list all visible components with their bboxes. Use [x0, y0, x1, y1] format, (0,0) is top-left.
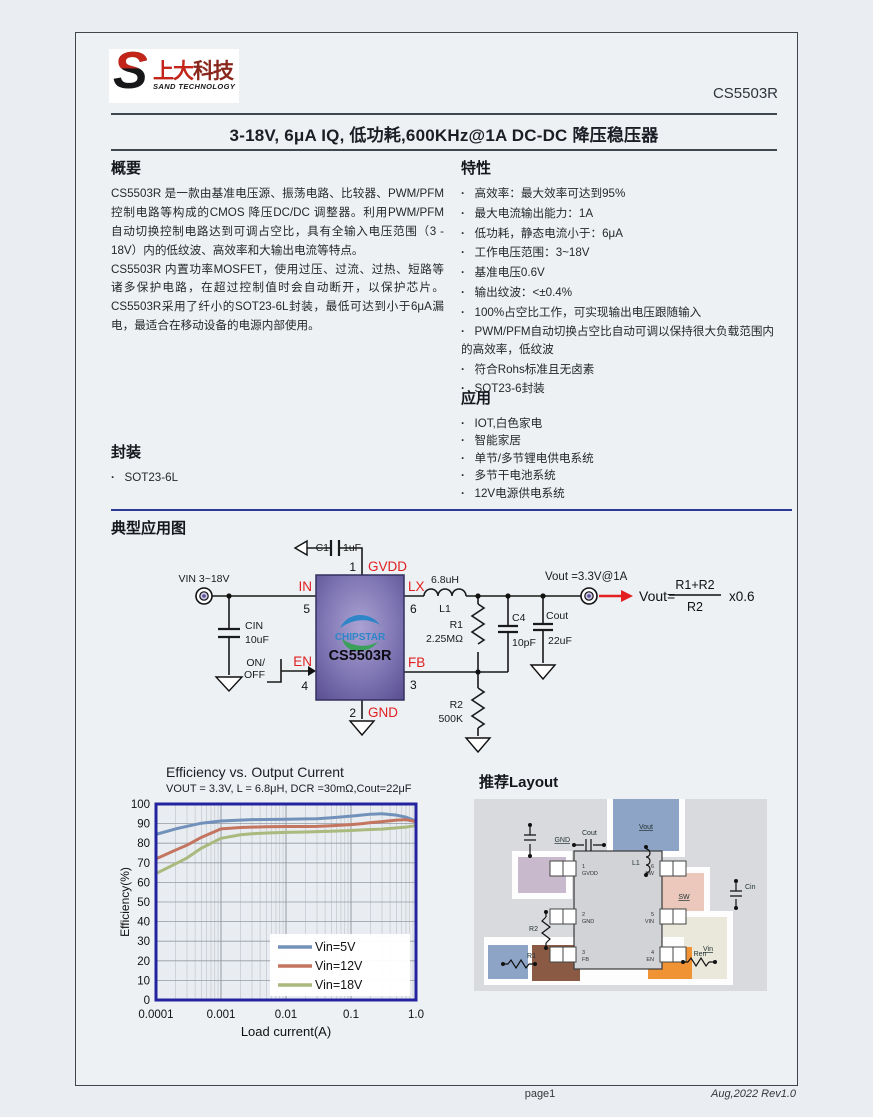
section-applications: 应用 IOT,白色家电 智能家居 单节/多节锂电供电系统 多节干电池系统 12V…: [461, 387, 783, 502]
svg-text:0.001: 0.001: [207, 1009, 236, 1021]
header-rule-bottom: [111, 149, 777, 151]
vout-formula: Vout= R1+R2 R2 x0.6: [599, 578, 755, 614]
package-list: SOT23-6L: [111, 469, 411, 486]
svg-text:C4: C4: [512, 612, 526, 624]
svg-text:GND: GND: [368, 705, 398, 720]
svg-text:6.8uH: 6.8uH: [431, 574, 459, 586]
list-item: 基准电压0.6V: [461, 264, 783, 281]
svg-text:R2: R2: [450, 699, 464, 711]
ground-icon: [216, 677, 242, 691]
svg-text:100: 100: [131, 799, 150, 811]
svg-text:L1: L1: [632, 860, 640, 867]
svg-text:R2: R2: [529, 926, 538, 933]
svg-text:500K: 500K: [438, 713, 463, 725]
features-heading: 特性: [461, 157, 783, 178]
list-item: IOT,白色家电: [461, 415, 783, 432]
svg-text:Vin=5V: Vin=5V: [315, 940, 356, 954]
svg-text:4: 4: [301, 679, 308, 693]
application-circuit-diagram: CHIPSTAR CS5503R C1 1uF VIN 3~18V CIN 10…: [109, 538, 779, 770]
efficiency-chart: 01020304050607080901000.00010.0010.010.1…: [118, 796, 428, 1046]
ground-icon: [295, 541, 307, 555]
section-divider: [111, 509, 792, 511]
svg-text:40: 40: [137, 917, 150, 929]
svg-text:GND: GND: [554, 837, 570, 844]
svg-text:20: 20: [137, 956, 150, 968]
svg-text:Vin=18V: Vin=18V: [315, 978, 363, 992]
list-item: SOT23-6L: [111, 469, 411, 486]
svg-text:0.1: 0.1: [343, 1009, 359, 1021]
svg-text:R1: R1: [527, 953, 536, 960]
layout-heading: 推荐Layout: [479, 771, 558, 792]
ground-icon: [350, 721, 374, 735]
list-item: 单节/多节锂电供电系统: [461, 450, 783, 467]
svg-text:6: 6: [651, 864, 654, 870]
svg-text:Efficiency(%): Efficiency(%): [118, 867, 132, 937]
overview-paragraph-2: CS5503R 内置功率MOSFET，使用过压、过流、过热、短路等诸多保护电路，…: [111, 261, 444, 337]
svg-text:GVDD: GVDD: [582, 871, 598, 877]
svg-text:Cout: Cout: [582, 830, 597, 837]
list-item: 低功耗，静态电流小于：6μA: [461, 225, 783, 242]
package-heading: 封装: [111, 441, 411, 462]
svg-text:Vout=: Vout=: [639, 588, 675, 604]
svg-text:1.0: 1.0: [408, 1009, 424, 1021]
svg-text:3: 3: [582, 950, 585, 956]
inductor-symbol: [424, 589, 466, 596]
svg-text:VIN: VIN: [645, 919, 654, 925]
vout-label: Vout =3.3V@1A: [545, 571, 628, 583]
page-title: 3-18V, 6μA IQ, 低功耗,600KHz@1A DC-DC 降压稳压器: [111, 121, 777, 146]
section-overview: 概要 CS5503R 是一款由基准电压源、振荡电路、比较器、PWM/PFM 控制…: [111, 157, 444, 336]
resistor-r1-symbol: [472, 604, 484, 644]
svg-text:2.25MΩ: 2.25MΩ: [426, 633, 463, 645]
applications-heading: 应用: [461, 387, 783, 408]
list-item: 符合Rohs标准且无卤素: [461, 361, 783, 378]
logo-cn-left: 上大: [153, 60, 193, 83]
chip-name: CS5503R: [329, 648, 392, 664]
footer-revision: Aug,2022 Rev1.0: [560, 1088, 796, 1100]
svg-text:1uF: 1uF: [343, 542, 361, 554]
svg-text:GND: GND: [582, 919, 594, 925]
svg-text:OFF: OFF: [244, 669, 265, 681]
svg-text:5: 5: [651, 912, 654, 918]
svg-text:10: 10: [137, 975, 150, 987]
svg-text:30: 30: [137, 936, 150, 948]
list-item: 高效率：最大效率可达到95%: [461, 185, 783, 202]
svg-text:70: 70: [137, 858, 150, 870]
logo-cn-name: 上大科技: [153, 62, 235, 82]
svg-text:0.0001: 0.0001: [138, 1009, 173, 1021]
svg-text:R2: R2: [687, 600, 703, 614]
svg-text:60: 60: [137, 877, 150, 889]
list-item: 智能家居: [461, 432, 783, 449]
svg-text:80: 80: [137, 838, 150, 850]
svg-text:22uF: 22uF: [548, 635, 572, 647]
list-item: 最大电流输出能力：1A: [461, 205, 783, 222]
resistor-r2-symbol: [472, 688, 484, 728]
svg-text:FB: FB: [582, 957, 589, 963]
header-rule-top: [111, 113, 777, 115]
applications-list: IOT,白色家电 智能家居 单节/多节锂电供电系统 多节干电池系统 12V电源供…: [461, 415, 783, 502]
pcb-layout-diagram: 1GVDD 2GND 3FB 6SW 5VIN 4EN Vout: [474, 799, 767, 991]
svg-text:Ren: Ren: [694, 951, 707, 958]
svg-text:5: 5: [303, 602, 310, 616]
svg-text:R1+R2: R1+R2: [675, 578, 714, 592]
svg-text:0: 0: [144, 995, 150, 1007]
vout-terminal: [581, 588, 597, 604]
svg-text:L1: L1: [439, 603, 451, 615]
logo-s-icon: S S: [113, 51, 151, 101]
vin-terminal: [196, 588, 212, 604]
logo-cn-right: 科技: [193, 60, 233, 83]
svg-text:2: 2: [349, 706, 356, 720]
svg-text:90: 90: [137, 819, 150, 831]
svg-text:x0.6: x0.6: [729, 589, 755, 604]
chart-title: Efficiency vs. Output Current: [166, 764, 344, 780]
overview-heading: 概要: [111, 157, 444, 178]
svg-text:Load current(A): Load current(A): [241, 1024, 331, 1039]
list-item: 工作电压范围：3~18V: [461, 244, 783, 261]
svg-text:LX: LX: [408, 579, 425, 594]
svg-text:6: 6: [410, 602, 417, 616]
svg-text:2: 2: [582, 912, 585, 918]
svg-text:50: 50: [137, 897, 150, 909]
svg-text:CIN: CIN: [245, 620, 263, 632]
svg-text:R1: R1: [450, 619, 464, 631]
vin-label: VIN 3~18V: [178, 573, 229, 585]
svg-text:Cin: Cin: [745, 884, 756, 891]
datasheet-sheet: S S 上大科技 SAND TECHNOLOGY CS5503R 3-18V, …: [75, 32, 798, 1086]
svg-text:IN: IN: [299, 579, 313, 594]
section-package: 封装 SOT23-6L: [111, 441, 411, 486]
svg-text:3: 3: [410, 678, 417, 692]
svg-text:GVDD: GVDD: [368, 559, 407, 574]
svg-text:0.01: 0.01: [275, 1009, 297, 1021]
svg-text:10uF: 10uF: [245, 634, 269, 646]
list-item: 12V电源供电系统: [461, 485, 783, 502]
svg-text:CHIPSTAR: CHIPSTAR: [335, 632, 386, 643]
list-item: 100%占空比工作，可实现输出电压跟随输入: [461, 304, 783, 321]
svg-text:EN: EN: [293, 654, 312, 669]
datasheet-page: { "logo": {"glyph": "S", "cn_left": "上大"…: [0, 0, 873, 1117]
svg-text:C1: C1: [316, 542, 330, 554]
svg-text:Cout: Cout: [546, 610, 568, 622]
svg-text:ON/: ON/: [246, 657, 265, 669]
typical-app-heading: 典型应用图: [111, 517, 186, 538]
list-item: 输出纹波：<±0.4%: [461, 284, 783, 301]
logo-text: 上大科技 SAND TECHNOLOGY: [153, 62, 235, 91]
svg-text:1: 1: [582, 864, 585, 870]
list-item: 多节干电池系统: [461, 467, 783, 484]
svg-text:EN: EN: [646, 957, 654, 963]
svg-text:10pF: 10pF: [512, 637, 536, 649]
svg-text:4: 4: [651, 950, 654, 956]
logo-en-name: SAND TECHNOLOGY: [153, 82, 235, 91]
svg-text:SW: SW: [678, 894, 690, 901]
part-number: CS5503R: [713, 85, 778, 102]
svg-text:Vout: Vout: [639, 824, 653, 831]
svg-text:FB: FB: [408, 655, 425, 670]
ground-icon: [531, 665, 555, 679]
svg-text:1: 1: [349, 560, 356, 574]
ground-icon: [466, 738, 490, 752]
section-features: 特性 高效率：最大效率可达到95% 最大电流输出能力：1A 低功耗，静态电流小于…: [461, 157, 783, 400]
company-logo: S S 上大科技 SAND TECHNOLOGY: [109, 49, 239, 103]
chart-subtitle: VOUT = 3.3V, L = 6.8μH, DCR =30mΩ,Cout=2…: [166, 783, 412, 795]
ic-footprint: [574, 851, 662, 969]
list-item: PWM/PFM自动切换占空比自动可调以保持很大负载范围内的高效率，低纹波: [461, 323, 783, 358]
svg-text:Vin=12V: Vin=12V: [315, 959, 363, 973]
overview-paragraph-1: CS5503R 是一款由基准电压源、振荡电路、比较器、PWM/PFM 控制电路等…: [111, 185, 444, 261]
features-list: 高效率：最大效率可达到95% 最大电流输出能力：1A 低功耗，静态电流小于：6μ…: [461, 185, 783, 398]
